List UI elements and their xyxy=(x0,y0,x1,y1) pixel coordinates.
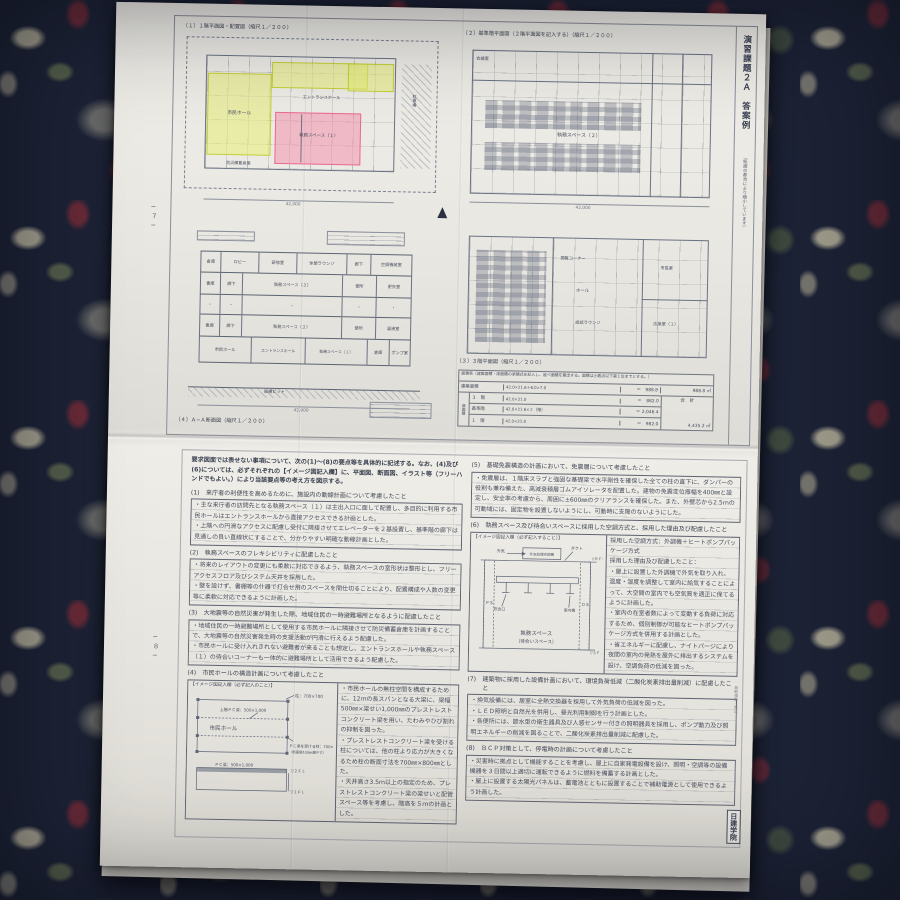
section3-number: (3) xyxy=(189,608,201,617)
area-row-formula: 42.0×21.0 xyxy=(503,418,620,425)
room-cell: 廊下 xyxy=(346,254,370,274)
room-cell: ・ xyxy=(241,295,341,316)
area-row-label: 建築面積 xyxy=(459,383,504,390)
answer-line: ・室内の在室者数によって変動する負荷に対応するため、個別制御が可能なヒートポンプ… xyxy=(608,609,735,643)
floor-area-group-label: 床面積 xyxy=(458,392,470,425)
parking-label: 駐車場 xyxy=(411,95,417,108)
answer-line: ・免震層は、１階床スラブと強固な基礎梁で水平剛性を確保した全ての柱の直下に、ダン… xyxy=(475,473,738,520)
section6-number: (6) xyxy=(470,521,482,530)
sheet-note: （紙面の都合により縮小しています） xyxy=(740,155,747,230)
plan1-title: 〔１〕１階平面図・配置図（縮尺１／２００） xyxy=(183,22,292,31)
highlight-stair-block xyxy=(348,63,395,92)
answer-line: ・屋上に設置する太陽光パネルは、蓄電池とともに設置することで補助電源として使用で… xyxy=(469,777,731,803)
answer-line: ・各便所には、節水型の衛生器具及び人感センサー付きの照明器具を採用し、ポンプ動力… xyxy=(470,717,732,743)
room-cell: ・ xyxy=(219,295,241,314)
answer-line: ・市民ホールの無柱空間を構成するために、12ｍの長スパンとなる大梁に、梁幅500… xyxy=(340,684,455,738)
indoor-unit-label: 室内機 xyxy=(564,607,576,612)
area-table: 面積表（建築面積・床面積の求積式を記入し、延べ面積を算出する。面積は小数点以下第… xyxy=(457,369,714,431)
section4-answer: ・市民ホールの無柱空間を構成するために、12ｍの長スパンとなる大梁に、梁幅500… xyxy=(336,683,459,824)
right-text-column: (5) 基礎免震構造の計画において、免震層について考慮したこと ・免震層は、１階… xyxy=(464,461,741,844)
publisher-logo: 日建学院 xyxy=(726,810,741,844)
reception-room-label: 応接室（１） xyxy=(653,321,678,327)
room-cell: 執務スペース（１） xyxy=(304,339,366,365)
room-cell: ・ xyxy=(199,294,219,313)
room-cell: 空調機械室 xyxy=(370,255,412,276)
area-row-total: 988.8 ㎡ xyxy=(661,387,713,394)
text-sheet: 要求図面では表せない事項について、次の(1)〜(8)の要点等を具体的に記述する。… xyxy=(174,449,747,848)
area-row-label: １ 階 xyxy=(469,417,503,424)
title-strip: 演習課題２Ａ 答案例 （紙面の都合により縮小しています） xyxy=(728,27,757,445)
section4-title: 市民ホールの構造計画について考慮したこと xyxy=(202,669,324,680)
section-drawing: 倉庫 ロビー 研修室 休憩ラウンジ 廊下 空調機械室 書庫 廊下 執務スペース（… xyxy=(173,228,445,433)
room-cell: ・ xyxy=(375,298,411,318)
annotation-note xyxy=(327,231,405,246)
room-cell: 書庫 xyxy=(199,314,219,335)
pc-receiving-column-note: （断面積100㎜増やす） xyxy=(289,749,326,755)
answer-line: ・壁を設けず、書棚等の什器で打合せ用のスペースを間仕切ることにより、配置構成や人… xyxy=(193,582,457,608)
room-cell: 廊下 xyxy=(219,315,241,336)
section4-number: (4) xyxy=(187,668,199,677)
level-1fl-label: ▽１ＦＬ xyxy=(290,789,305,794)
dimension-value: 42,000 xyxy=(293,408,308,413)
bousai-label: 防災備蓄倉庫 xyxy=(206,160,270,167)
plan-1f-site: 〔１〕１階平面図・配置図（縮尺１／２００） 駐車場 市民ホール エントランスホー… xyxy=(177,22,449,223)
north-arrow-icon xyxy=(437,207,447,218)
room-cell: 更衣室 xyxy=(376,276,412,298)
structure-sketch-cell: 【イメージ図記入欄（必ず記入のこと）】 柱：700×700 xyxy=(186,680,339,821)
room-cell: ・ xyxy=(341,297,375,317)
area-row-value: ＝ 2,046.4 xyxy=(621,409,661,416)
room-cell: 執務スペース（２） xyxy=(241,315,341,338)
room-cell: 倉庫 xyxy=(200,252,220,272)
desk-cluster xyxy=(484,142,641,173)
section8-answer: ・災害時に拠点として機能することを考慮し、屋上に自家発電設備を設け、照明・空調等… xyxy=(465,754,736,806)
hall-label: ホール xyxy=(576,288,589,294)
area-row-value: ＝ 882.0 xyxy=(621,398,661,405)
annotation-note xyxy=(197,230,255,241)
room-cell: 書庫 xyxy=(200,272,220,293)
parking-area xyxy=(400,64,432,169)
plan-3rd-floor: 閲覧コーナー ホール 談話ラウンジ 市長室 応接室（１） 〔３〕３階平面図（縮尺… xyxy=(453,231,727,442)
page-number-7: −７− xyxy=(148,202,159,231)
reading-corner-label: 閲覧コーナー xyxy=(560,255,585,261)
mayor-room-label: 市長室 xyxy=(660,265,673,271)
ds-shaft-label: ＤＳ xyxy=(581,602,589,607)
section6-figure-box: 【イメージ図記入欄（必ず記入すること）】 外気処理空調機 外気 ダクト xyxy=(468,531,741,676)
room-cell: エントランスホール xyxy=(250,337,304,363)
area-total-value: 4,435.2 ㎡ xyxy=(663,422,710,429)
isolation-note xyxy=(369,402,431,419)
left-text-column: 要求図面では表せない事項について、次の(1)〜(8)の要点等を具体的に記述する。… xyxy=(184,455,463,838)
section8-number: (8) xyxy=(466,744,478,753)
dimension-value: 42,000 xyxy=(285,202,300,207)
room-cell: 研修室 xyxy=(258,253,296,274)
structure-sketch: 柱：700×700 上階ＰＣ梁：500×1,000 市民ホール ＰＣ梁を受ける柱… xyxy=(188,687,334,802)
room-cell: ロビー xyxy=(220,252,258,273)
section3-answer: ・地域住民の一時避難場所として使用する市民ホールに隣接させて防災備蓄倉庫を計画す… xyxy=(188,619,461,671)
committee-room-seats xyxy=(475,250,547,343)
section2-answer: ・将来のレイアウトの変更にも柔軟に対応できるよう、執務スペースの室形状は整形とし… xyxy=(189,559,462,611)
area-row-value: ＝ 988.8 xyxy=(621,387,661,394)
level-3fl-label: ▽３ＦＬ xyxy=(590,651,603,655)
section7-answer: ・換気設備には、居室に全熱交換器を採用して外気負荷の低減を図った。 ・ＬＥＤ照明… xyxy=(466,694,737,746)
area-row-value: ＝ 982.0 xyxy=(620,420,660,427)
level-rfl-label: ▽ＲＦＬ xyxy=(592,557,603,561)
pit-label: 設備ピット xyxy=(264,389,285,395)
pc-receiving-column-label: ＰＣ梁を受ける柱：700×800 xyxy=(289,743,334,749)
room-cell: 執務スペース（３） xyxy=(242,273,342,296)
answer-line: ・プレストレストコンクリート梁を受ける柱については、他の柱より応力が大きくなるた… xyxy=(340,736,455,780)
desk-cluster xyxy=(485,100,642,131)
drawing-sheet: 演習課題２Ａ 答案例 （紙面の都合により縮小しています） 〔１〕１階平面図・配置… xyxy=(166,15,758,446)
pc-beam-label: ＰＣ梁：500×1,000 xyxy=(215,761,254,768)
ps-shaft-label: ＰＳ xyxy=(485,600,493,605)
room-cell: ポンプ室 xyxy=(388,340,410,365)
civic-hall-label: 市民ホール xyxy=(209,723,238,732)
upper-pc-beam-label: 上階ＰＣ梁：500×1,000 xyxy=(220,706,267,713)
plan-typical-floor: 〔２〕基準階平面図（２階平面図を記入する）（縮尺１／２００） 会議室 執務スペー… xyxy=(457,29,731,230)
section7-number: (7) xyxy=(467,675,479,693)
room-cell: 廊下 xyxy=(220,273,242,294)
plan3-title: 〔３〕３階平面図（縮尺１／２００） xyxy=(456,357,544,366)
oa-unit-label: 外気処理空調機 xyxy=(530,551,555,556)
section1-number: (1) xyxy=(191,488,203,497)
hvac-sketch-cell: 【イメージ図記入欄（必ず記入すること）】 外気処理空調機 外気 ダクト xyxy=(469,532,608,673)
lounge-label: 談話ラウンジ xyxy=(575,320,600,326)
answer-line: ・上階への円滑なアクセスに配慮し受付に隣接させてエレベーターを２基設置し、基準階… xyxy=(194,522,458,548)
answer-line: ・屋上に設置した外調機で外気を取り入れ、温度・湿度を調整して室内に給気することに… xyxy=(609,567,736,611)
room-cell: 倉庫 xyxy=(366,340,388,365)
waiting-space-label: （待合いスペース） xyxy=(516,637,557,645)
area-row-label: 基準階 xyxy=(470,406,504,413)
answer-line: ・市民ホールに受け入れきれない避難者が来ることも想定し、エントランスホールや執務… xyxy=(192,642,456,668)
plan4-title: 〔４〕Ａ−Ａ断面図（縮尺１／２００） xyxy=(175,416,268,425)
office-space-label: 執務スペース xyxy=(520,628,552,637)
building-section: 倉庫 ロビー 研修室 休憩ラウンジ 廊下 空調機械室 書庫 廊下 執務スペース（… xyxy=(198,251,412,367)
instructions-paragraph: 要求図面では表せない事項について、次の(1)〜(8)の要点等を具体的に記述する。… xyxy=(191,455,464,489)
area-row-formula: 42.0×21.6＋6.0×7.0 xyxy=(504,384,621,392)
room-cell: 便所 xyxy=(342,275,376,297)
section2-title: 執務スペースのフレキシビリティに配慮したこと xyxy=(205,549,338,561)
section5-number: (5) xyxy=(471,461,483,470)
section2-number: (2) xyxy=(190,548,202,557)
diffuser-label: 吹出口 xyxy=(494,606,506,611)
level-2fl-label: ▽２ＦＬ xyxy=(291,768,306,773)
room-cell: 便所 xyxy=(341,317,375,339)
sheet-title: 演習課題２Ａ 答案例 xyxy=(739,35,753,130)
duct-label: ダクト xyxy=(571,544,583,550)
page-number-8: −８− xyxy=(150,633,161,662)
answer-line: ・省エネルギーに配慮し、ナイトパージにより夜間の室内の発熱を屋外に排出するシステ… xyxy=(608,640,735,674)
dimension-value: 42,000 xyxy=(575,206,590,211)
room-cell: 市民ホール xyxy=(198,336,250,362)
civic-hall-label: 市民ホール xyxy=(209,109,269,117)
hvac-sketch: 外気処理空調機 外気 ダクト ＰＳ ＤＳ xyxy=(471,539,603,665)
room-cell: 休憩ラウンジ xyxy=(296,253,346,274)
area-row-formula: 42.0×21.0 xyxy=(504,396,621,403)
room-cell: 湯沸室 xyxy=(375,318,411,340)
area-row-formula: 42.0×21.6×２（階） xyxy=(504,406,621,414)
copyright-note: 無断複製・禁止 xyxy=(733,686,740,713)
outdoor-air-label: 外気 xyxy=(497,547,505,553)
section5-answer: ・免震層は、１階床スラブと強固な基礎梁で水平剛性を確保した全ての柱の直下に、ダン… xyxy=(471,471,742,523)
meeting-room-label: 会議室 xyxy=(476,56,489,62)
area-total-label: 合 計 xyxy=(664,397,711,404)
answer-line: ・天井高さ3.5ｍ以上の指定のため、プレストレストコンクリート梁の梁せいと配管ス… xyxy=(339,778,454,822)
section6-answer: 採用した空調方式：外調機＋ヒートポンプパッケージ方式 採用した理由及び配慮したこ… xyxy=(605,535,740,676)
hvac-method-line: 採用した空調方式：外調機＋ヒートポンプパッケージ方式 xyxy=(610,536,736,559)
section1-answer: ・主な来庁者の訪問先となる執務スペース（１）は主出入口に面して配置し、多目的に利… xyxy=(190,499,463,551)
plan2-title: 〔２〕基準階平面図（２階平面図を記入する）（縮尺１／２００） xyxy=(463,29,616,39)
area-row-label: ３ 階 xyxy=(470,395,504,402)
column-size-label: 柱：700×700 xyxy=(295,692,323,700)
answer-sheet-paper: −７− 演習課題２Ａ 答案例 （紙面の都合により縮小しています） 〔１〕１階平面… xyxy=(100,2,766,878)
photo-of-exam-answer-sheet-on-carpet: −７− 演習課題２Ａ 答案例 （紙面の都合により縮小しています） 〔１〕１階平面… xyxy=(0,0,900,900)
section4-figure-box: 【イメージ図記入欄（必ず記入のこと）】 柱：700×700 xyxy=(185,679,460,824)
ground-hatch xyxy=(188,386,420,400)
